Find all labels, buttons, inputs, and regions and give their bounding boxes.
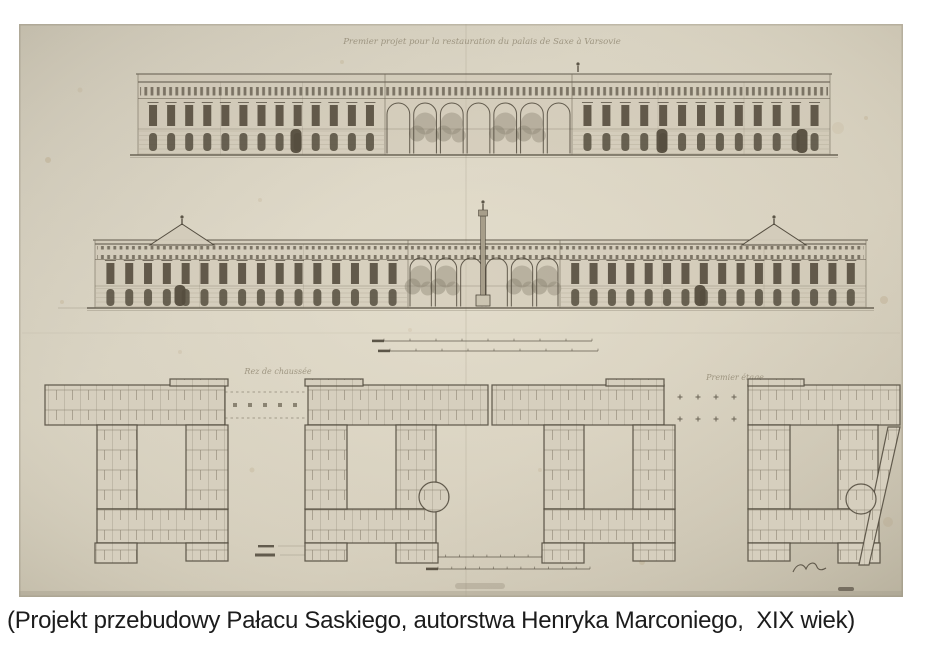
plan-label-ground-floor: Rez de chaussée [243,367,311,376]
paper-bottom-edge [19,591,903,597]
title-inscription: Premier projet pour la restauration du p… [342,36,621,47]
top-elevation-drawing [130,62,838,157]
palace-drawing-scan: Premier projet pour la restauration du p… [0,0,934,671]
caption: (Projekt przebudowy Pałacu Saskiego, aut… [7,606,855,636]
screenshot-stage: Premier projet pour la restauration du p… [0,0,934,671]
